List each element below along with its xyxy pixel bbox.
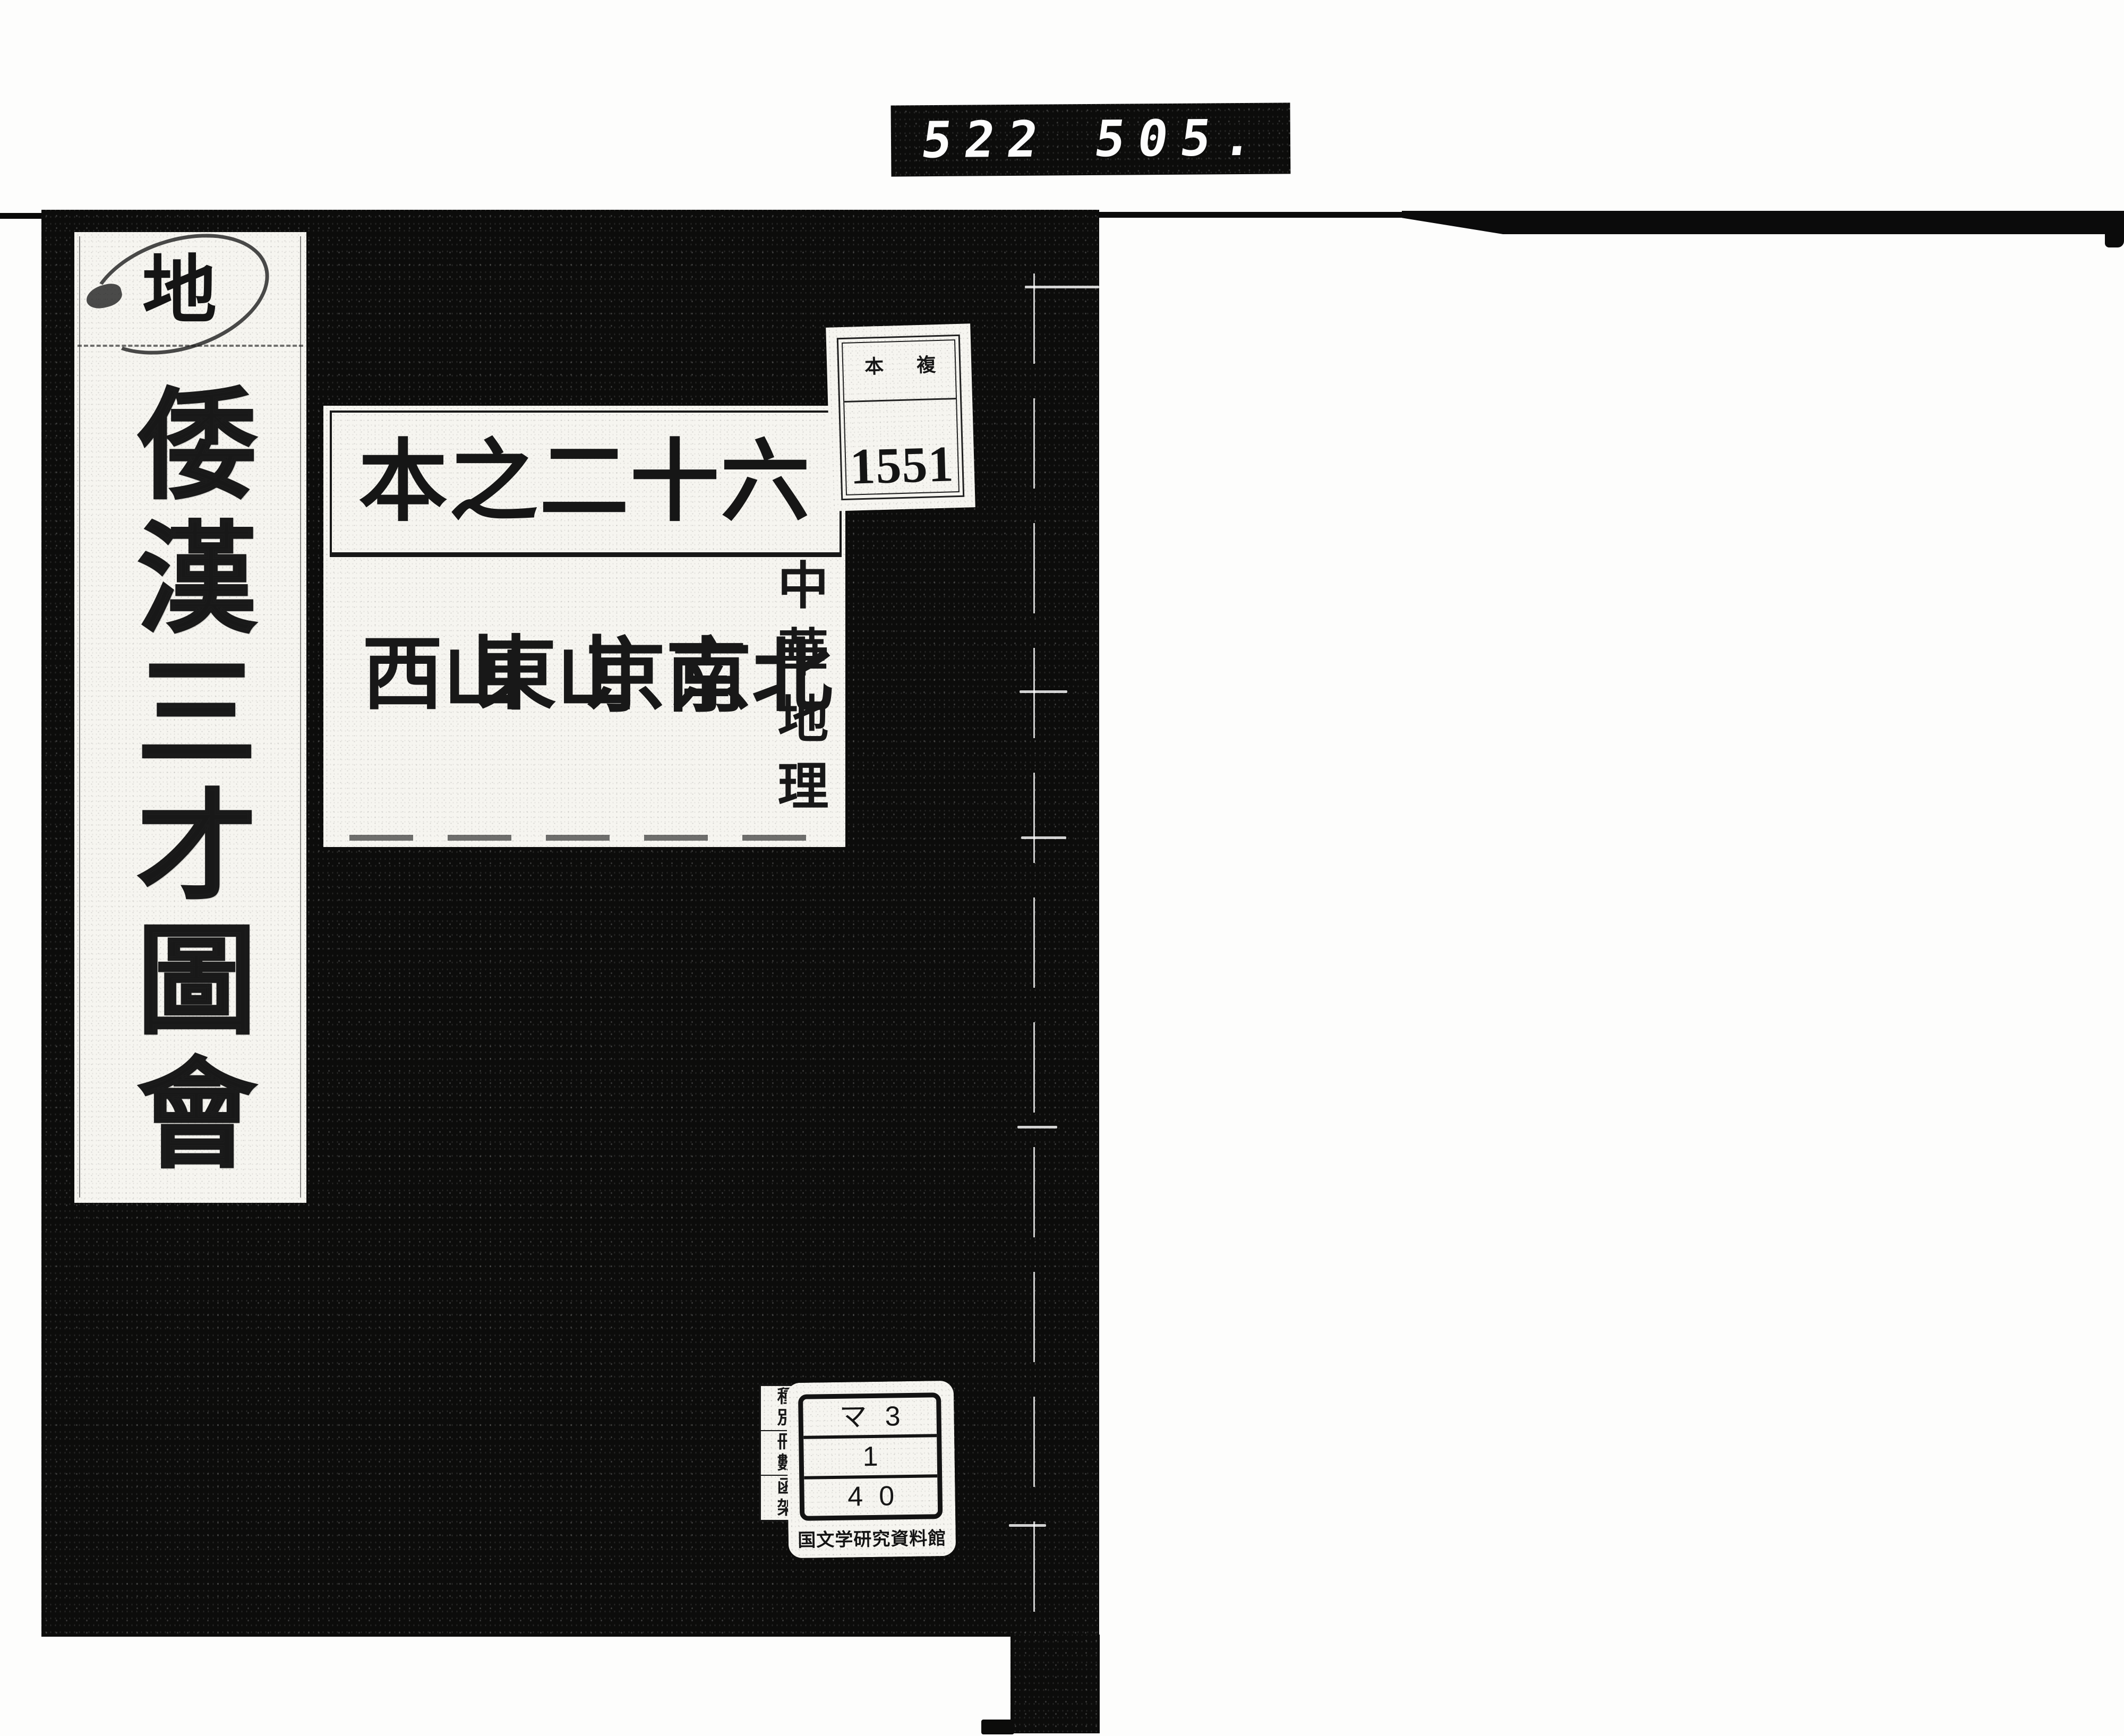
crease-mark [1009,1524,1046,1527]
spine-crease-line [1033,273,1035,1633]
volume-header-char: 之 [449,438,538,527]
page-edge-band-hook [2105,212,2124,247]
crease-mark [1020,690,1067,693]
page-edge-band-thick [1402,211,2124,234]
slip-title-vertical: 倭漢三才圖會 [125,382,245,1185]
accession-number: 1551 [845,438,958,492]
institution-caption: 国文学研究資料館 [788,1524,956,1552]
call-number-row: マ3 [803,1397,937,1436]
digit-counter-strip: 522 505. [891,102,1291,176]
digit-group-left: 522 [919,115,1054,166]
accession-header-left: 本 [864,351,884,379]
spine-tab-foot [981,1720,1014,1734]
spine-bottom-tab [1010,1635,1100,1733]
volume-header-char: 本 [358,438,448,527]
call-number-row: 1 [803,1434,937,1476]
digit-group-right: 505. [1091,114,1269,165]
slip-divider-rule [78,345,303,347]
label-edge-smudge [349,835,825,841]
region-column-shanxi: 山西 [354,631,516,847]
crease-mark [1017,1126,1057,1128]
book-cover: 地 倭漢三才圖會 本 之 二 十 六 中華地理 北京 南京 山東 山西 本 複 [41,210,1099,1637]
accession-label: 本 複 1551 [826,323,975,511]
volume-header-box: 本 之 二 十 六 [330,411,842,557]
crease-mark [1025,286,1099,288]
volume-header-char: 二 [539,438,629,527]
accession-header: 本 複 [843,340,955,380]
call-number-row: 40 [804,1474,938,1516]
scanned-book-cover-page: { "colors": { "cover_black": "#0c0c0b", … [0,0,2124,1736]
call-number-stamp: マ3 1 40 国文学研究資料館 [786,1381,956,1558]
slip-border-line [79,236,80,1198]
slip-border-line [300,236,301,1198]
call-number-box: マ3 1 40 [798,1392,943,1521]
volume-header-char: 十 [630,438,720,527]
seal-character: 地 [142,254,217,329]
accession-header-right: 複 [916,349,936,378]
spine-title-slip: 地 倭漢三才圖會 [74,232,306,1203]
accession-frame-inner: 本 複 1551 [842,339,960,495]
title-label: 本 之 二 十 六 中華地理 北京 南京 山東 山西 [323,406,845,847]
crease-mark [1021,836,1066,839]
volume-header-char: 六 [721,438,810,527]
accession-divider [844,398,956,403]
left-edge-line [0,213,42,219]
accession-frame-outer: 本 複 1551 [837,335,964,500]
